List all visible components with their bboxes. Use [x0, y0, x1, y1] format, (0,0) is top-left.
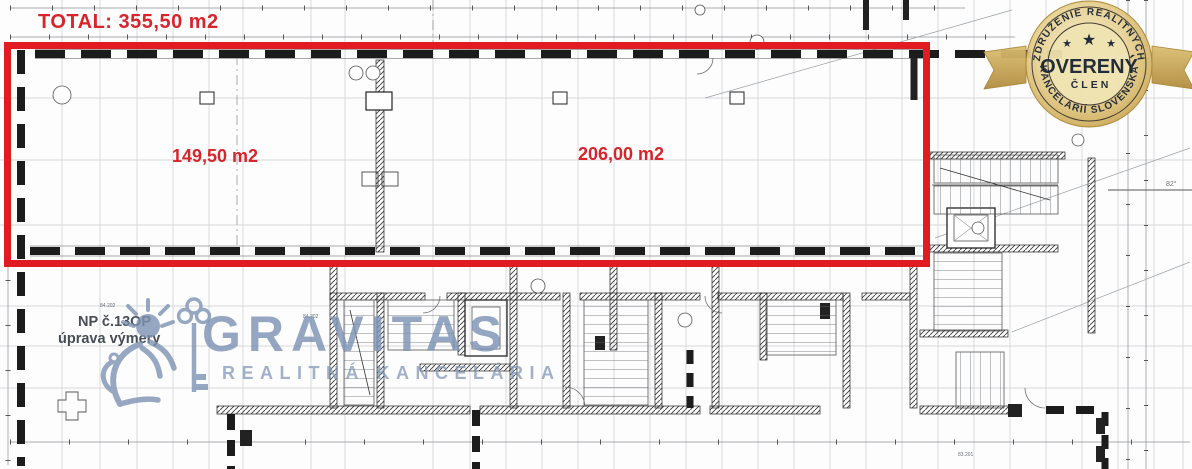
badge-title-text: OVERENÝ	[1040, 54, 1138, 78]
verified-member-badge: ZDRUŽENIE REALITNÝCH KANCELÁRIÍ SLOVENSK…	[978, 0, 1192, 194]
badge-subtitle-text: ČLEN	[1071, 78, 1112, 91]
right-room-area-label: 206,00 m2	[578, 144, 664, 165]
star-icon: ★	[1082, 32, 1096, 49]
badge-ribbon-right	[1152, 46, 1192, 89]
left-room-area-label: 149,50 m2	[172, 146, 258, 167]
star-icon: ★	[1062, 38, 1072, 50]
watermark-subtitle-text: REALITNÁ KANCELÁRIA	[222, 363, 561, 384]
elevation-label: 83.201	[958, 452, 973, 458]
gravitas-logo	[92, 292, 214, 414]
gravitas-lion-icon	[103, 300, 174, 404]
total-area-label: TOTAL: 355,50 m2	[38, 11, 219, 34]
floor-plan-listing-image: TOTAL: 355,50 m2 149,50 m2 206,00 m2 NP …	[0, 0, 1192, 469]
watermark-brand-text: GRAVITAS	[202, 305, 509, 363]
star-icon: ★	[1106, 38, 1116, 50]
badge-ribbon-left	[984, 46, 1026, 89]
